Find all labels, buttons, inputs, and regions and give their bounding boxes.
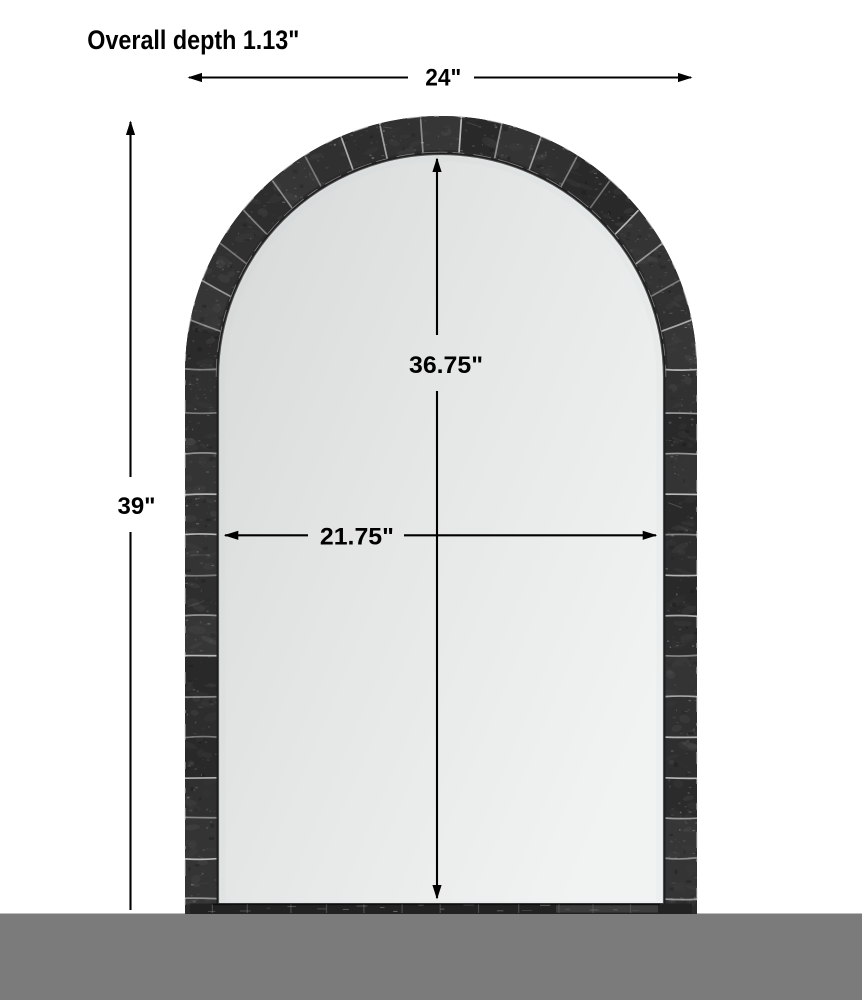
svg-text:21.75": 21.75" [320, 524, 394, 551]
svg-text:36.75": 36.75" [409, 352, 483, 379]
svg-text:39": 39" [118, 493, 156, 520]
svg-text:Overall depth 1.13": Overall depth 1.13" [87, 24, 299, 55]
svg-text:24": 24" [425, 65, 461, 92]
